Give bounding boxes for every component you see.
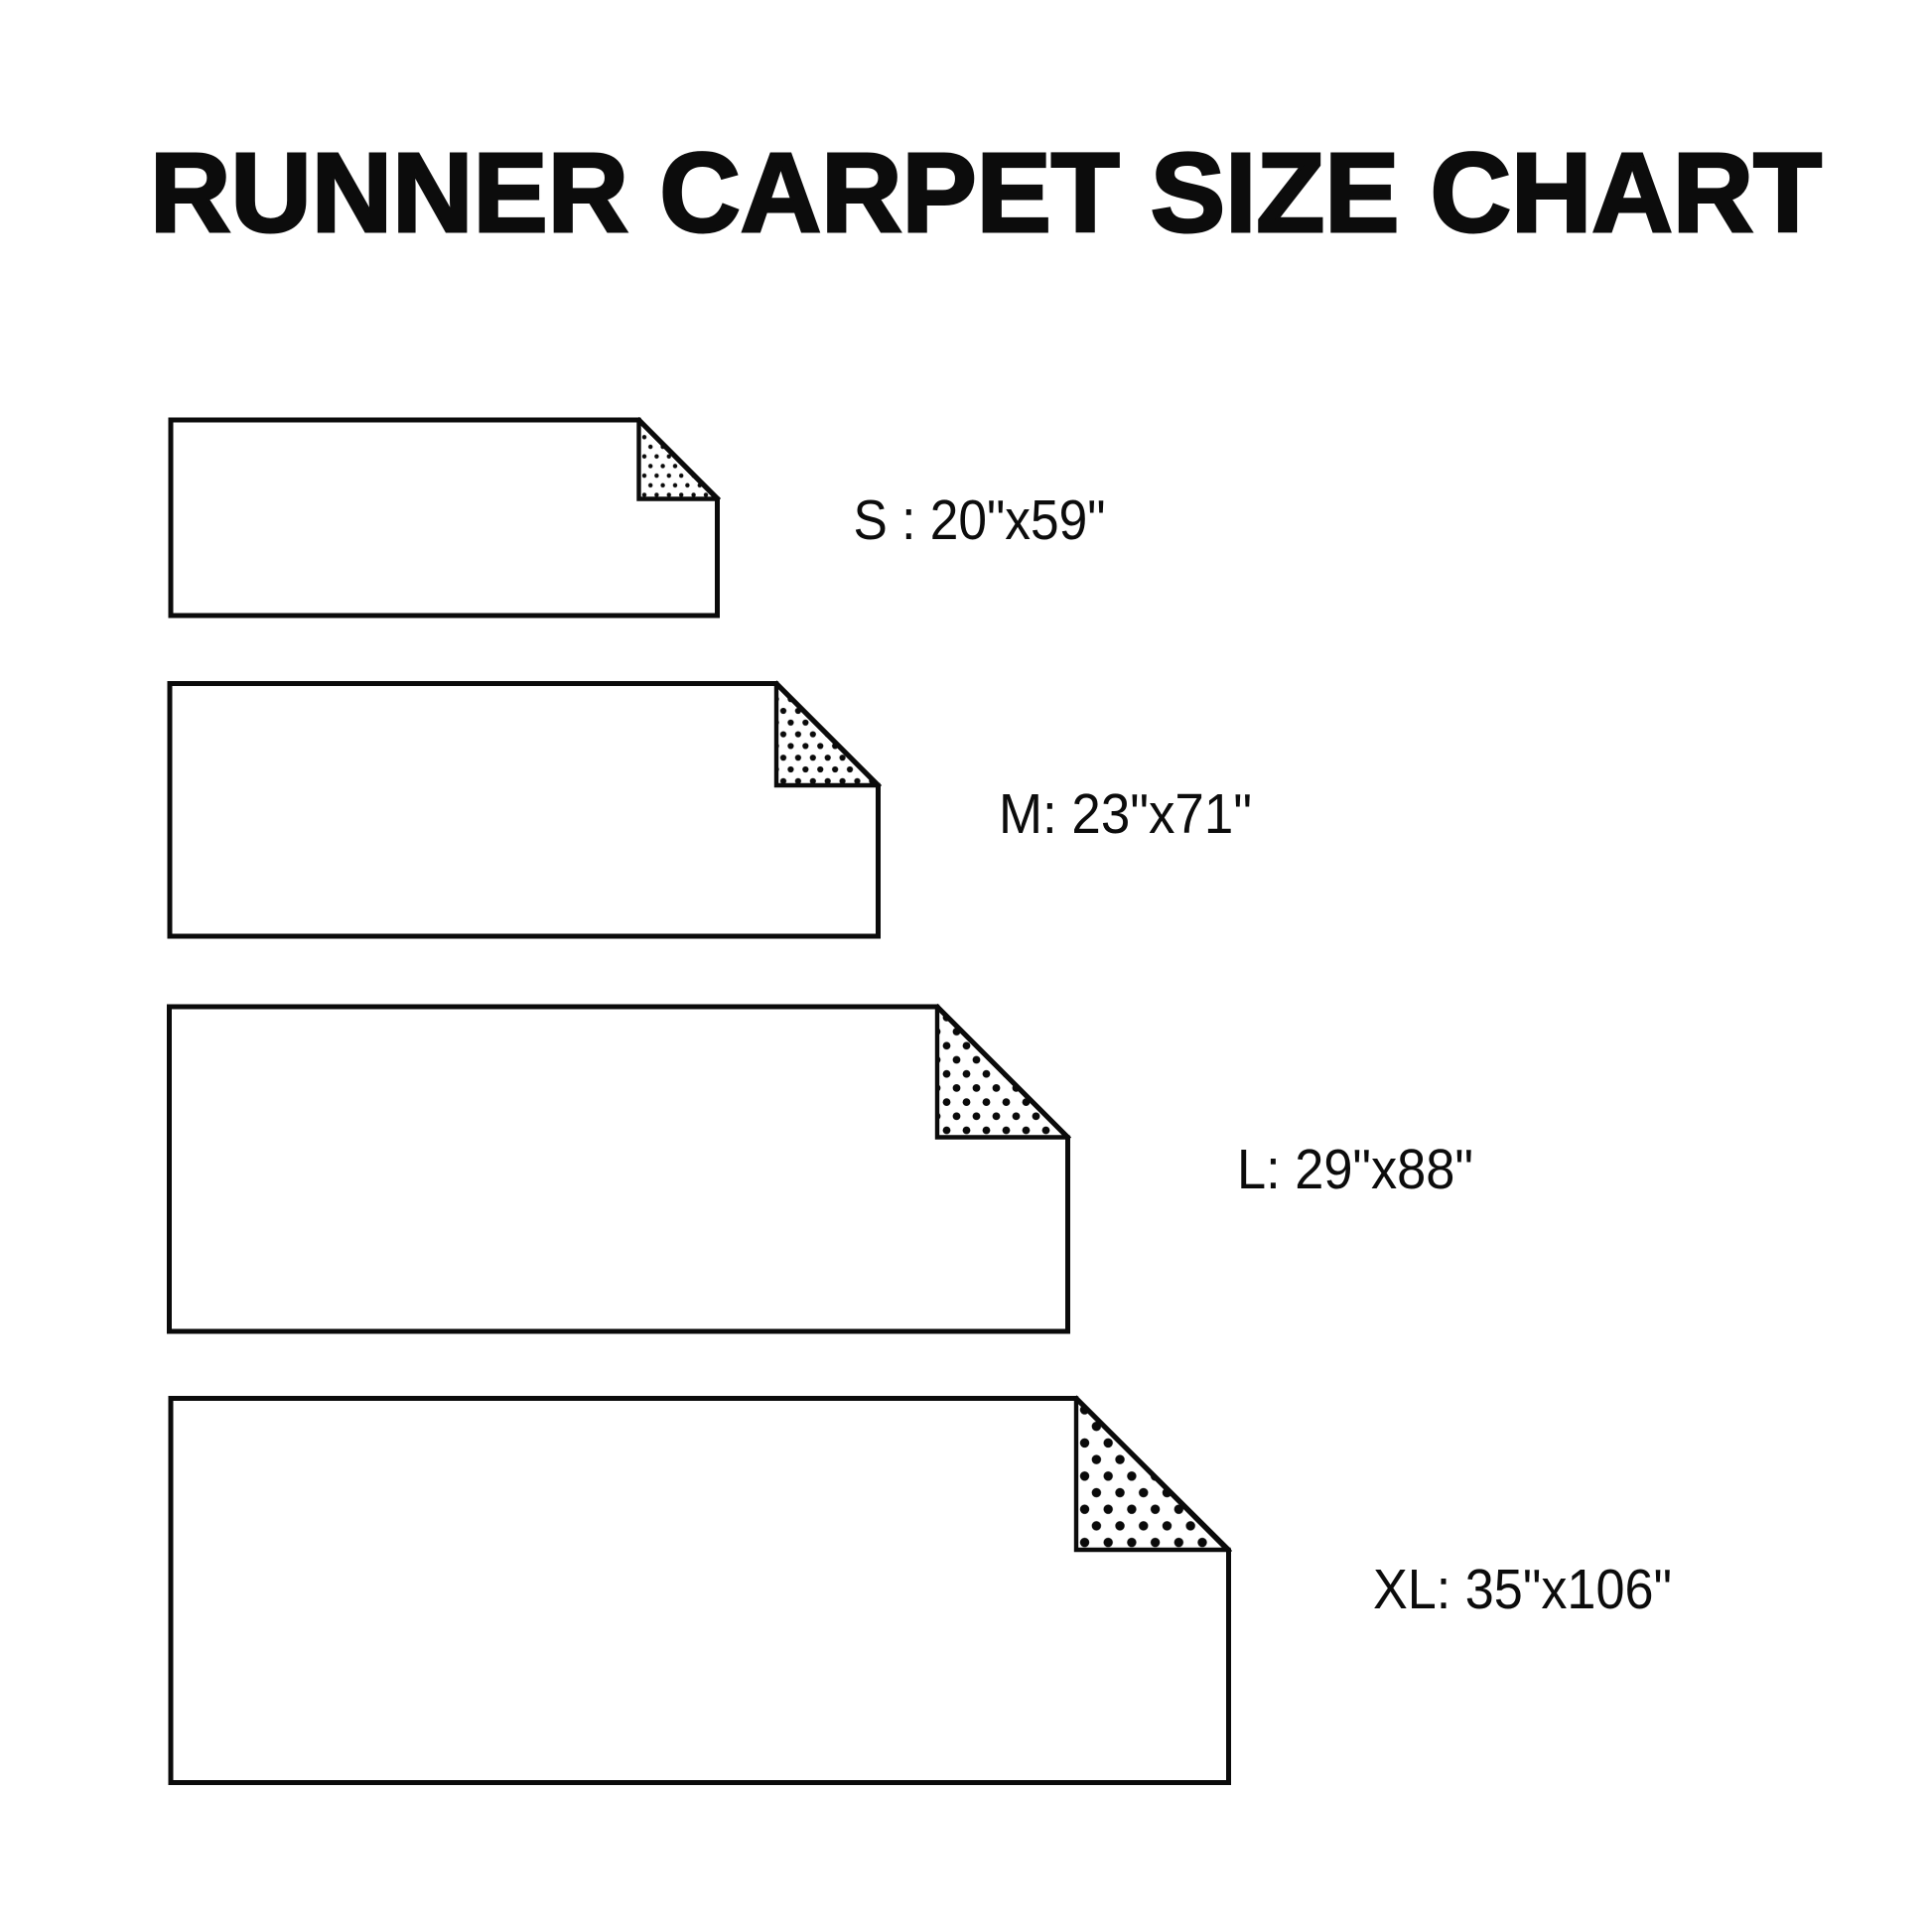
svg-text:L: 29"x88": L: 29"x88" bbox=[1237, 1138, 1473, 1201]
svg-text:S : 20"x59": S : 20"x59" bbox=[854, 488, 1106, 552]
svg-text:M: 23"x71": M: 23"x71" bbox=[999, 782, 1252, 846]
svg-text:RUNNER CARPET SIZE CHART: RUNNER CARPET SIZE CHART bbox=[150, 130, 1822, 255]
svg-text:XL: 35"x106": XL: 35"x106" bbox=[1373, 1558, 1672, 1621]
